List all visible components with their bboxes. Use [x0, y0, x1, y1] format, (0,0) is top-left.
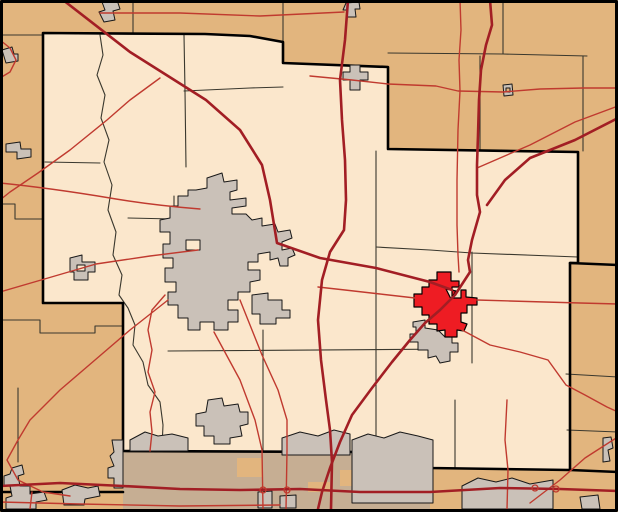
strip-tan-pocket-1	[237, 458, 262, 477]
town-bottom-tiny-2	[280, 495, 296, 508]
map-svg	[0, 0, 618, 512]
town-bottom-tiny-3	[580, 495, 600, 509]
county-locator-map	[0, 0, 618, 512]
